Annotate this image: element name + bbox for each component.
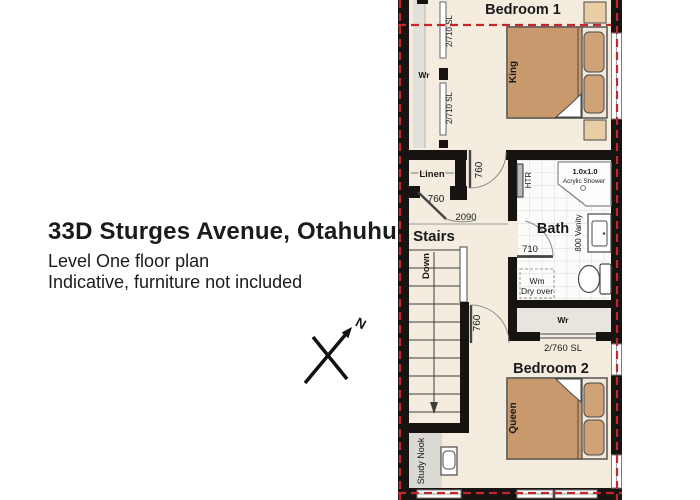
north-compass: N xyxy=(305,315,369,383)
stair-balustrade xyxy=(460,247,467,302)
stairs-label: Stairs xyxy=(413,228,455,245)
shower-type-label: Acrylic Shower xyxy=(563,178,606,185)
study-nook-label: Study Nook xyxy=(416,437,426,484)
floor-plan-canvas: Bedroom 1 King Wr 2/710 SL 2/710 SL Line… xyxy=(0,0,700,500)
nightstand-bottom xyxy=(584,120,606,140)
queen-bed-label: Queen xyxy=(508,402,519,433)
bath-door-dim: 710 xyxy=(522,244,538,255)
dryer-label: Dry over xyxy=(521,286,553,296)
wardrobe2-slider-label: 2/760 SL xyxy=(544,343,582,354)
north-label: N xyxy=(353,315,369,333)
nightstand-top xyxy=(584,2,606,23)
toilet xyxy=(579,264,612,294)
washer-label: Wm xyxy=(529,276,544,286)
queen-pillow-top xyxy=(584,383,604,417)
shower-size-label: 1.0x1.0 xyxy=(572,167,597,176)
htr-label: HTR xyxy=(524,172,533,189)
floor-plan-page: 33D Sturges Avenue, Otahuhu Level One fl… xyxy=(0,0,700,500)
bedroom2-label: Bedroom 2 xyxy=(513,361,589,377)
bedroom1-door-dim: 760 xyxy=(474,161,485,178)
king-bed-label: King xyxy=(508,61,519,83)
bath-label: Bath xyxy=(537,221,569,237)
king-bed xyxy=(507,27,607,118)
slider-top-label: 2/710 SL xyxy=(445,14,454,47)
king-pillow-top xyxy=(584,32,604,72)
slider-bottom-label: 2/710 SL xyxy=(445,91,454,124)
vanity-label: 800 Vanity xyxy=(574,214,583,251)
linen-label: Linen xyxy=(419,169,445,180)
vanity xyxy=(588,214,611,252)
stairs-down-label: Down xyxy=(421,253,432,279)
bedroom1-label: Bedroom 1 xyxy=(485,2,561,18)
hall-width-dim: 2090 xyxy=(455,212,476,223)
wardrobe2-label: Wr xyxy=(557,315,569,325)
queen-pillow-bottom xyxy=(584,420,604,455)
heated-towel-rail xyxy=(517,164,523,197)
king-pillow-bottom xyxy=(584,75,604,113)
bedroom2-door-dim: 760 xyxy=(472,314,483,331)
linen-door-dim: 760 xyxy=(428,194,445,205)
study-desk xyxy=(441,447,457,475)
study-chair xyxy=(443,451,455,469)
queen-bed xyxy=(507,378,607,459)
wardrobe1-label: Wr xyxy=(418,70,430,80)
